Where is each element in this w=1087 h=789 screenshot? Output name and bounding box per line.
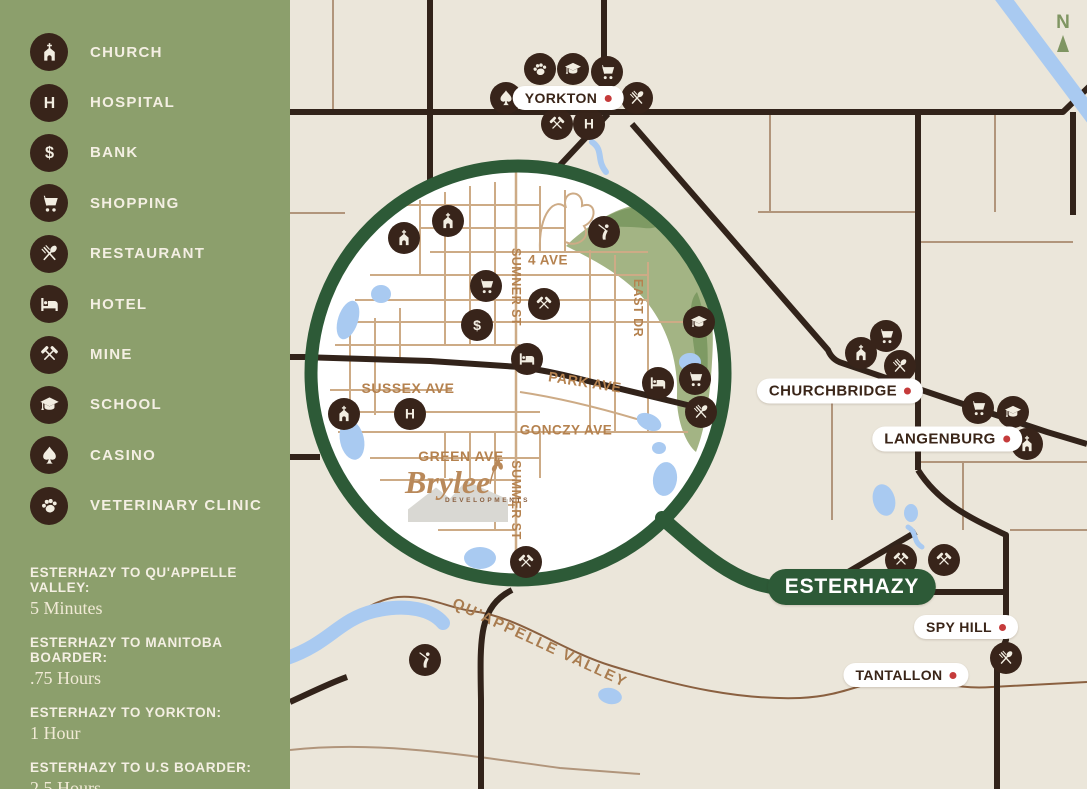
legend-label: CHURCH bbox=[90, 44, 163, 61]
town-dot-icon bbox=[904, 388, 911, 395]
mine-icon bbox=[528, 288, 560, 320]
restaurant-icon bbox=[621, 82, 653, 114]
shopping-icon bbox=[962, 392, 994, 424]
legend-label: CASINO bbox=[90, 447, 156, 464]
legend-label: BANK bbox=[90, 144, 139, 161]
street-label-sumner-st: SUMNER ST bbox=[509, 248, 523, 326]
town-label-churchbridge: CHURCHBRIDGE bbox=[757, 379, 923, 404]
hospital-icon bbox=[573, 108, 605, 140]
restaurant-icon bbox=[685, 396, 717, 428]
shopping-icon bbox=[679, 363, 711, 395]
town-name: TANTALLON bbox=[855, 667, 942, 683]
legend-item-school: SCHOOL bbox=[30, 380, 290, 430]
school-icon bbox=[557, 53, 589, 85]
town-name: YORKTON bbox=[525, 90, 598, 106]
legend-item-veterinary-clinic: VETERINARY CLINIC bbox=[30, 481, 290, 531]
shopping-icon bbox=[470, 270, 502, 302]
town-dot-icon bbox=[1003, 436, 1010, 443]
town-name: SPY HILL bbox=[926, 619, 992, 635]
town-label-tantallon: TANTALLON bbox=[843, 663, 968, 687]
distance-item-3: ESTERHAZY TO U.S BOARDER: 2.5 Hours bbox=[30, 760, 290, 789]
golf-icon bbox=[409, 644, 441, 676]
distance-label: ESTERHAZY TO U.S BOARDER: bbox=[30, 760, 290, 775]
shopping-icon bbox=[30, 184, 68, 222]
town-label-spy-hill: SPY HILL bbox=[914, 615, 1018, 639]
school-icon bbox=[997, 396, 1029, 428]
street-label-4-ave: 4 AVE bbox=[528, 253, 568, 268]
legend-sidebar: CHURCH HOSPITAL BANK SHOPPING RESTAURANT… bbox=[0, 0, 290, 789]
town-name: LANGENBURG bbox=[884, 431, 996, 448]
distance-label: ESTERHAZY TO MANITOBA BOARDER: bbox=[30, 635, 290, 665]
legend-label: RESTAURANT bbox=[90, 245, 205, 262]
legend-list: CHURCH HOSPITAL BANK SHOPPING RESTAURANT… bbox=[30, 27, 290, 531]
legend-item-hospital: HOSPITAL bbox=[30, 77, 290, 127]
hotel-icon bbox=[511, 343, 543, 375]
bank-icon bbox=[461, 309, 493, 341]
legend-item-church: CHURCH bbox=[30, 27, 290, 77]
church-icon bbox=[328, 398, 360, 430]
distance-item-1: ESTERHAZY TO MANITOBA BOARDER: .75 Hours bbox=[30, 635, 290, 689]
school-icon bbox=[683, 306, 715, 338]
vet-icon bbox=[524, 53, 556, 85]
hotel-icon bbox=[30, 285, 68, 323]
compass-north: N bbox=[1048, 12, 1078, 52]
distance-item-2: ESTERHAZY TO YORKTON: 1 Hour bbox=[30, 705, 290, 744]
distance-value: 1 Hour bbox=[30, 723, 290, 744]
north-arrow-icon bbox=[1057, 35, 1069, 52]
legend-item-mine: MINE bbox=[30, 329, 290, 379]
town-dot-icon bbox=[604, 95, 611, 102]
legend-label: VETERINARY CLINIC bbox=[90, 497, 262, 514]
street-label-east-dr: EAST DR bbox=[631, 279, 645, 337]
distance-item-0: ESTERHAZY TO QU'APPELLE VALLEY: 5 Minute… bbox=[30, 565, 290, 619]
bank-icon bbox=[30, 134, 68, 172]
legend-item-casino: CASINO bbox=[30, 430, 290, 480]
town-dot-icon bbox=[950, 672, 957, 679]
mine-icon bbox=[928, 544, 960, 576]
legend-label: SCHOOL bbox=[90, 396, 162, 413]
church-icon bbox=[845, 337, 877, 369]
town-label-langenburg: LANGENBURG bbox=[872, 427, 1022, 452]
esterhazy-area-map: H $ bbox=[0, 0, 1087, 789]
distance-value: 5 Minutes bbox=[30, 598, 290, 619]
town-label-yorkton: YORKTON bbox=[513, 86, 624, 110]
street-label-gonczy-ave: GONCZY AVE bbox=[520, 423, 613, 438]
casino-icon bbox=[30, 436, 68, 474]
mine-icon bbox=[541, 108, 573, 140]
town-name: CHURCHBRIDGE bbox=[769, 383, 897, 400]
distance-value: 2.5 Hours bbox=[30, 778, 290, 789]
legend-label: HOTEL bbox=[90, 296, 147, 313]
compass-letter: N bbox=[1048, 12, 1078, 34]
church-icon bbox=[30, 33, 68, 71]
street-label-sussex-ave: SUSSEX AVE bbox=[362, 380, 455, 396]
town-dot-icon bbox=[999, 624, 1006, 631]
hotel-icon bbox=[642, 367, 674, 399]
hospital-icon bbox=[394, 398, 426, 430]
distance-label: ESTERHAZY TO QU'APPELLE VALLEY: bbox=[30, 565, 290, 595]
legend-item-hotel: HOTEL bbox=[30, 279, 290, 329]
church-icon bbox=[432, 205, 464, 237]
distance-list: ESTERHAZY TO QU'APPELLE VALLEY: 5 Minute… bbox=[30, 565, 290, 789]
legend-item-restaurant: RESTAURANT bbox=[30, 229, 290, 279]
town-name: ESTERHAZY bbox=[785, 575, 919, 598]
legend-item-bank: BANK bbox=[30, 128, 290, 178]
restaurant-icon bbox=[884, 350, 916, 382]
church-icon bbox=[388, 222, 420, 254]
school-icon bbox=[30, 386, 68, 424]
distance-value: .75 Hours bbox=[30, 668, 290, 689]
restaurant-icon bbox=[990, 642, 1022, 674]
legend-item-shopping: SHOPPING bbox=[30, 178, 290, 228]
legend-label: MINE bbox=[90, 346, 133, 363]
mine-icon bbox=[510, 546, 542, 578]
town-label-esterhazy: ESTERHAZY bbox=[768, 569, 936, 605]
mine-icon bbox=[30, 336, 68, 374]
vet-icon bbox=[30, 487, 68, 525]
legend-label: SHOPPING bbox=[90, 195, 180, 212]
legend-label: HOSPITAL bbox=[90, 94, 175, 111]
distance-label: ESTERHAZY TO YORKTON: bbox=[30, 705, 290, 720]
logo-wordmark: Brylee bbox=[405, 466, 525, 498]
golf-icon bbox=[588, 216, 620, 248]
logo-subtitle: DEVELOPMENTS bbox=[445, 497, 525, 504]
restaurant-icon bbox=[30, 235, 68, 273]
hospital-icon bbox=[30, 84, 68, 122]
shopping-icon bbox=[591, 56, 623, 88]
brylee-developments-logo: Brylee DEVELOPMENTS bbox=[405, 466, 525, 504]
